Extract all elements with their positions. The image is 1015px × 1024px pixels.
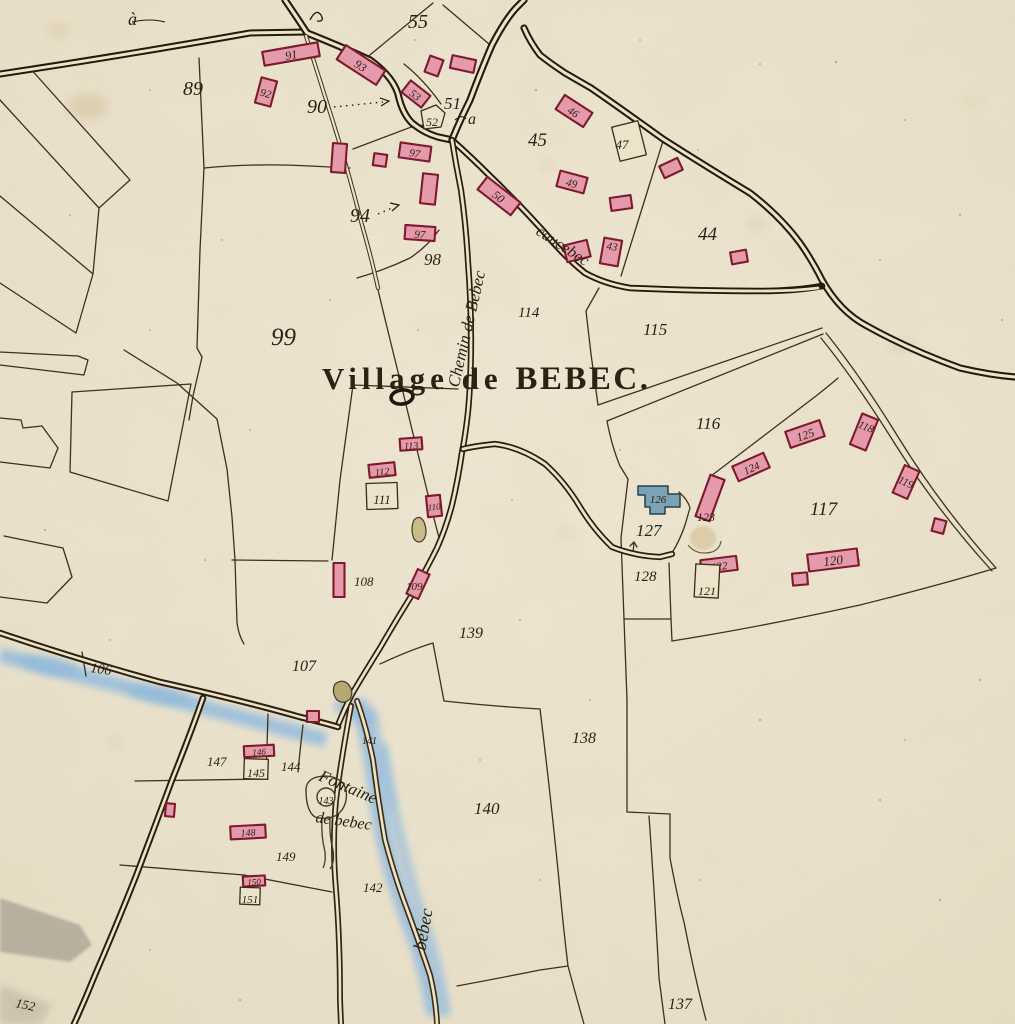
svg-text:à: à (128, 9, 137, 29)
svg-text:150: 150 (247, 877, 262, 888)
svg-text:140: 140 (474, 799, 500, 818)
svg-text:147: 147 (207, 754, 227, 769)
svg-text:89: 89 (183, 78, 203, 100)
svg-text:141: 141 (362, 736, 377, 747)
svg-text:143: 143 (319, 796, 334, 807)
svg-text:90: 90 (307, 96, 327, 118)
svg-text:139: 139 (459, 625, 483, 642)
svg-text:97: 97 (408, 147, 421, 160)
svg-text:120: 120 (822, 552, 844, 569)
svg-text:110: 110 (427, 501, 441, 512)
svg-text:a: a (468, 111, 476, 128)
svg-text:137: 137 (668, 996, 693, 1013)
svg-text:144: 144 (281, 759, 301, 774)
svg-text:127: 127 (636, 521, 663, 540)
svg-text:113: 113 (404, 441, 419, 453)
svg-text:55: 55 (408, 11, 428, 33)
svg-text:51: 51 (444, 94, 461, 113)
svg-text:98: 98 (424, 250, 442, 269)
svg-text:112: 112 (375, 466, 390, 478)
svg-text:149: 149 (276, 849, 296, 864)
svg-text:108: 108 (354, 574, 374, 589)
svg-text:45: 45 (528, 130, 547, 151)
svg-text:116: 116 (696, 414, 721, 433)
svg-text:111: 111 (373, 492, 391, 507)
svg-text:117: 117 (810, 499, 839, 520)
svg-text:142: 142 (363, 880, 383, 895)
svg-text:107: 107 (292, 658, 317, 675)
svg-text:114: 114 (518, 305, 540, 321)
svg-text:Village de BEBEC.: Village de BEBEC. (322, 361, 650, 397)
svg-text:148: 148 (240, 828, 256, 840)
svg-text:151: 151 (242, 894, 259, 906)
svg-text:138: 138 (572, 730, 596, 747)
svg-text:91: 91 (284, 47, 298, 63)
svg-text:146: 146 (252, 747, 267, 758)
svg-text:128: 128 (634, 569, 657, 585)
svg-text:109: 109 (406, 581, 423, 593)
svg-text:97: 97 (414, 229, 426, 242)
svg-text:126: 126 (650, 494, 667, 506)
svg-text:115: 115 (643, 320, 667, 339)
svg-text:145: 145 (247, 766, 265, 780)
svg-text:99: 99 (271, 324, 297, 351)
svg-text:123: 123 (697, 510, 715, 524)
svg-text:121: 121 (698, 584, 716, 598)
svg-text:94: 94 (350, 205, 370, 227)
svg-text:52: 52 (426, 115, 438, 129)
svg-text:44: 44 (698, 224, 718, 245)
svg-text:106: 106 (89, 661, 112, 679)
svg-text:47: 47 (616, 137, 630, 152)
